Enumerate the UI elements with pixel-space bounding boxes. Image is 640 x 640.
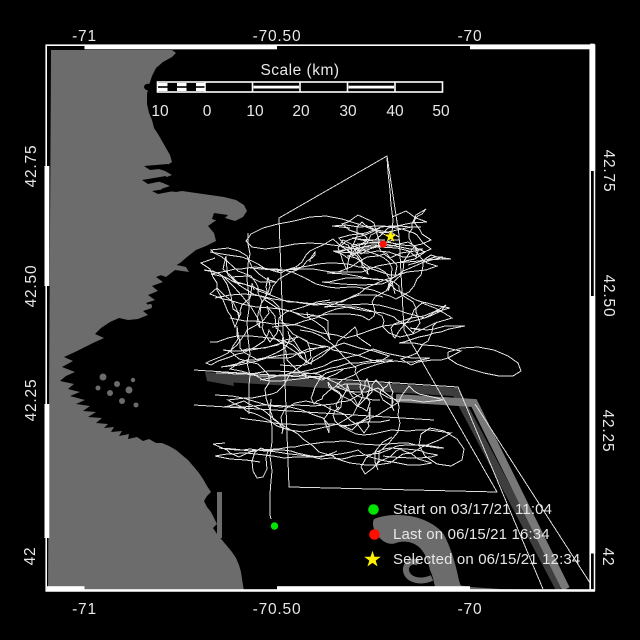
svg-text:42.50: 42.50 [23, 265, 40, 308]
svg-text:10: 10 [246, 103, 264, 120]
svg-text:42.25: 42.25 [599, 410, 616, 453]
svg-text:Scale (km): Scale (km) [260, 62, 339, 79]
svg-text:-70: -70 [458, 28, 483, 45]
svg-text:42.50: 42.50 [600, 275, 617, 318]
svg-text:20: 20 [292, 103, 310, 120]
svg-text:-70: -70 [458, 601, 483, 618]
svg-text:50: 50 [432, 103, 450, 120]
svg-text:42.75: 42.75 [600, 150, 617, 193]
svg-text:-70.50: -70.50 [253, 601, 302, 618]
svg-text:Last on 06/15/21 16:34: Last on 06/15/21 16:34 [393, 526, 550, 543]
svg-text:42.25: 42.25 [23, 379, 40, 422]
svg-text:-71: -71 [72, 601, 97, 618]
svg-text:0: 0 [203, 103, 212, 120]
svg-text:42: 42 [599, 548, 616, 567]
svg-text:30: 30 [339, 103, 357, 120]
svg-text:40: 40 [386, 103, 404, 120]
svg-text:10: 10 [151, 103, 169, 120]
svg-text:Selected on 06/15/21 12:34: Selected on 06/15/21 12:34 [393, 551, 580, 568]
svg-text:Start on 03/17/21 11:04: Start on 03/17/21 11:04 [393, 501, 552, 518]
svg-text:-71: -71 [72, 28, 97, 45]
svg-text:42.75: 42.75 [23, 145, 40, 188]
svg-text:42: 42 [22, 547, 39, 566]
svg-text:-70.50: -70.50 [253, 28, 302, 45]
